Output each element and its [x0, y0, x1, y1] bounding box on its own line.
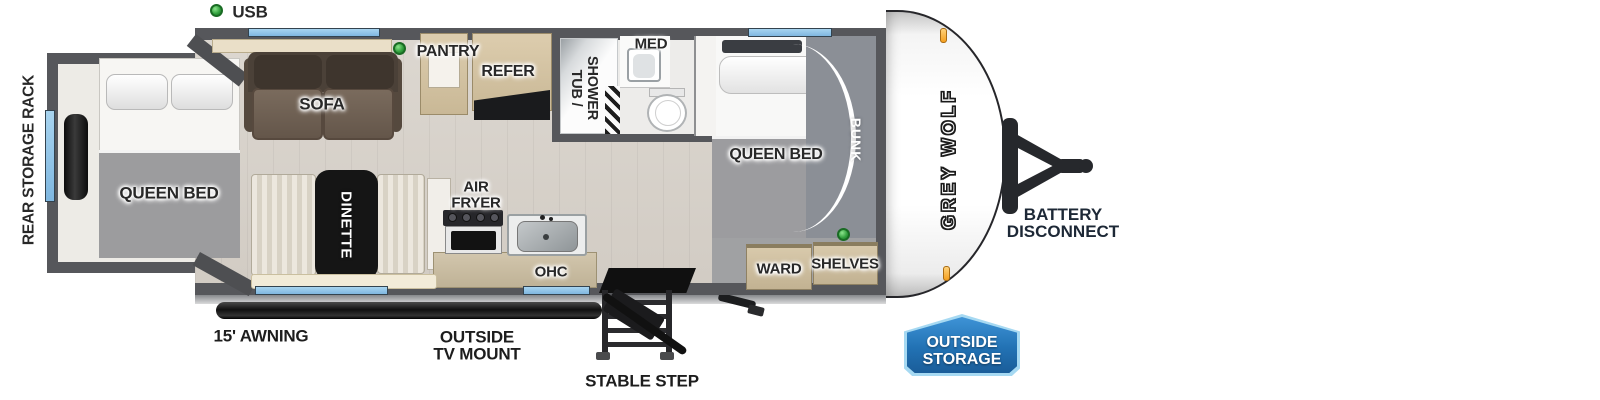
toilet-seat [655, 100, 681, 126]
usb-indicator-icon [837, 228, 850, 241]
burner-icon [462, 213, 471, 222]
bunk-curve [730, 44, 856, 232]
kitchen-window [523, 286, 590, 295]
outside-storage-line1: OUTSIDE [926, 334, 997, 351]
ohc-label: OHC [535, 265, 568, 280]
marker-light-icon [943, 266, 950, 281]
dinette-window [255, 286, 388, 295]
outside-tv-mount-line1: OUTSIDE [440, 329, 514, 346]
marker-light-icon [940, 28, 947, 43]
front-bedroom-window [748, 28, 832, 37]
dinette-bench-left [251, 174, 316, 276]
rear-storage-rack-door [64, 114, 88, 200]
battery-disconnect-line1: BATTERY [997, 206, 1129, 223]
dinette-bench-right [377, 174, 425, 274]
front-queen-bed-label: QUEEN BED [729, 147, 822, 163]
rear-queen-bed-label: QUEEN BED [119, 185, 218, 202]
dinette-label: DINETTE [339, 191, 354, 259]
usb-indicator-icon [393, 42, 406, 55]
awning-tube [216, 302, 602, 319]
kitchen-counter [433, 252, 597, 288]
sofa-back-cushion [254, 55, 322, 89]
usb-indicator-icon [210, 4, 223, 17]
battery-disconnect-line2: DISCONNECT [997, 223, 1129, 240]
air-fryer-opening [451, 231, 496, 250]
outside-storage-line2: STORAGE [923, 351, 1002, 368]
pillow [106, 74, 168, 110]
bunk-label: BUNK [849, 118, 863, 162]
air-fryer-label-line2: FRYER [451, 196, 500, 211]
hitch-arm-lower [1016, 160, 1064, 198]
usb-legend-label: USB [232, 4, 267, 21]
awning-label: 15' AWNING [214, 328, 309, 345]
faucet-icon [549, 217, 553, 221]
tub-shower-label-line1: TUB / [568, 56, 584, 120]
floorplan-diagram: USB QUEEN BED REAR STORAGE RACK SOFA PAN… [0, 0, 1600, 400]
refer-label: REFER [481, 64, 534, 80]
outside-storage-badge-face: OUTSIDE STORAGE [907, 317, 1017, 373]
burner-icon [490, 213, 499, 222]
tub-shower-label: TUB / SHOWER [552, 72, 616, 104]
hitch-crossbar [1002, 118, 1018, 214]
pillow [171, 74, 233, 110]
tub-shower-label-line2: SHOWER [584, 56, 600, 120]
brand-logo: GREY WOLF [939, 84, 963, 234]
burner-icon [476, 213, 485, 222]
air-fryer-label-line1: AIR [463, 180, 488, 195]
sofa-label: SOFA [299, 96, 345, 113]
stabilizer-foot [747, 304, 765, 317]
outside-storage-badge: OUTSIDE STORAGE [904, 314, 1020, 376]
rear-window [45, 110, 55, 202]
med-cabinet-label: MED [635, 37, 668, 52]
outside-tv-mount-line2: TV MOUNT [433, 346, 520, 363]
pantry-label: PANTRY [417, 44, 480, 60]
sink-drain-icon [543, 234, 549, 240]
shelves-label: SHELVES [811, 257, 879, 272]
battery-disconnect-label: BATTERY DISCONNECT [997, 206, 1129, 240]
rear-bed-blanket [99, 150, 240, 258]
stable-step-label: STABLE STEP [585, 373, 699, 390]
sofa-back-cushion [326, 55, 394, 89]
stable-step [596, 288, 700, 372]
burner-icon [448, 213, 457, 222]
faucet-icon [540, 215, 545, 220]
ward-label: WARD [756, 262, 801, 277]
sofa-back-shelf [212, 39, 392, 53]
bath-cabinet [694, 36, 716, 136]
rear-storage-rack-label: REAR STORAGE RACK [21, 75, 37, 245]
sofa-window [248, 28, 380, 37]
step-rung [608, 342, 666, 347]
step-foot [660, 352, 674, 360]
bath-sink-bowl [633, 54, 655, 78]
hitch-ball-icon [1079, 159, 1093, 173]
step-foot [596, 352, 610, 360]
